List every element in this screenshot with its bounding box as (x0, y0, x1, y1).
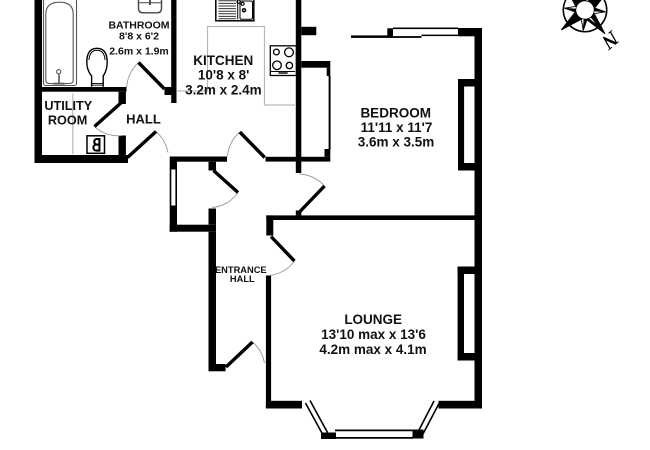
svg-text:BEDROOM: BEDROOM (360, 106, 431, 121)
svg-text:ROOM: ROOM (48, 114, 87, 128)
svg-text:HALL: HALL (230, 274, 255, 284)
svg-text:UTILITY: UTILITY (44, 99, 92, 113)
svg-text:3.2m x 2.4m: 3.2m x 2.4m (185, 83, 262, 98)
svg-text:3.6m x 3.5m: 3.6m x 3.5m (358, 135, 435, 150)
svg-text:LOUNGE: LOUNGE (344, 312, 402, 327)
svg-text:13'10 max x 13'6: 13'10 max x 13'6 (321, 327, 426, 342)
svg-text:HALL: HALL (126, 112, 161, 127)
svg-text:4.2m max x 4.1m: 4.2m max x 4.1m (319, 342, 426, 357)
svg-text:KITCHEN: KITCHEN (193, 53, 253, 68)
svg-text:2.6m x 1.9m: 2.6m x 1.9m (109, 46, 169, 58)
svg-text:10'8 x 8': 10'8 x 8' (198, 68, 249, 83)
svg-text:11'11 x 11'7: 11'11 x 11'7 (361, 120, 433, 135)
svg-text:8'8 x 6'2: 8'8 x 6'2 (119, 31, 159, 43)
